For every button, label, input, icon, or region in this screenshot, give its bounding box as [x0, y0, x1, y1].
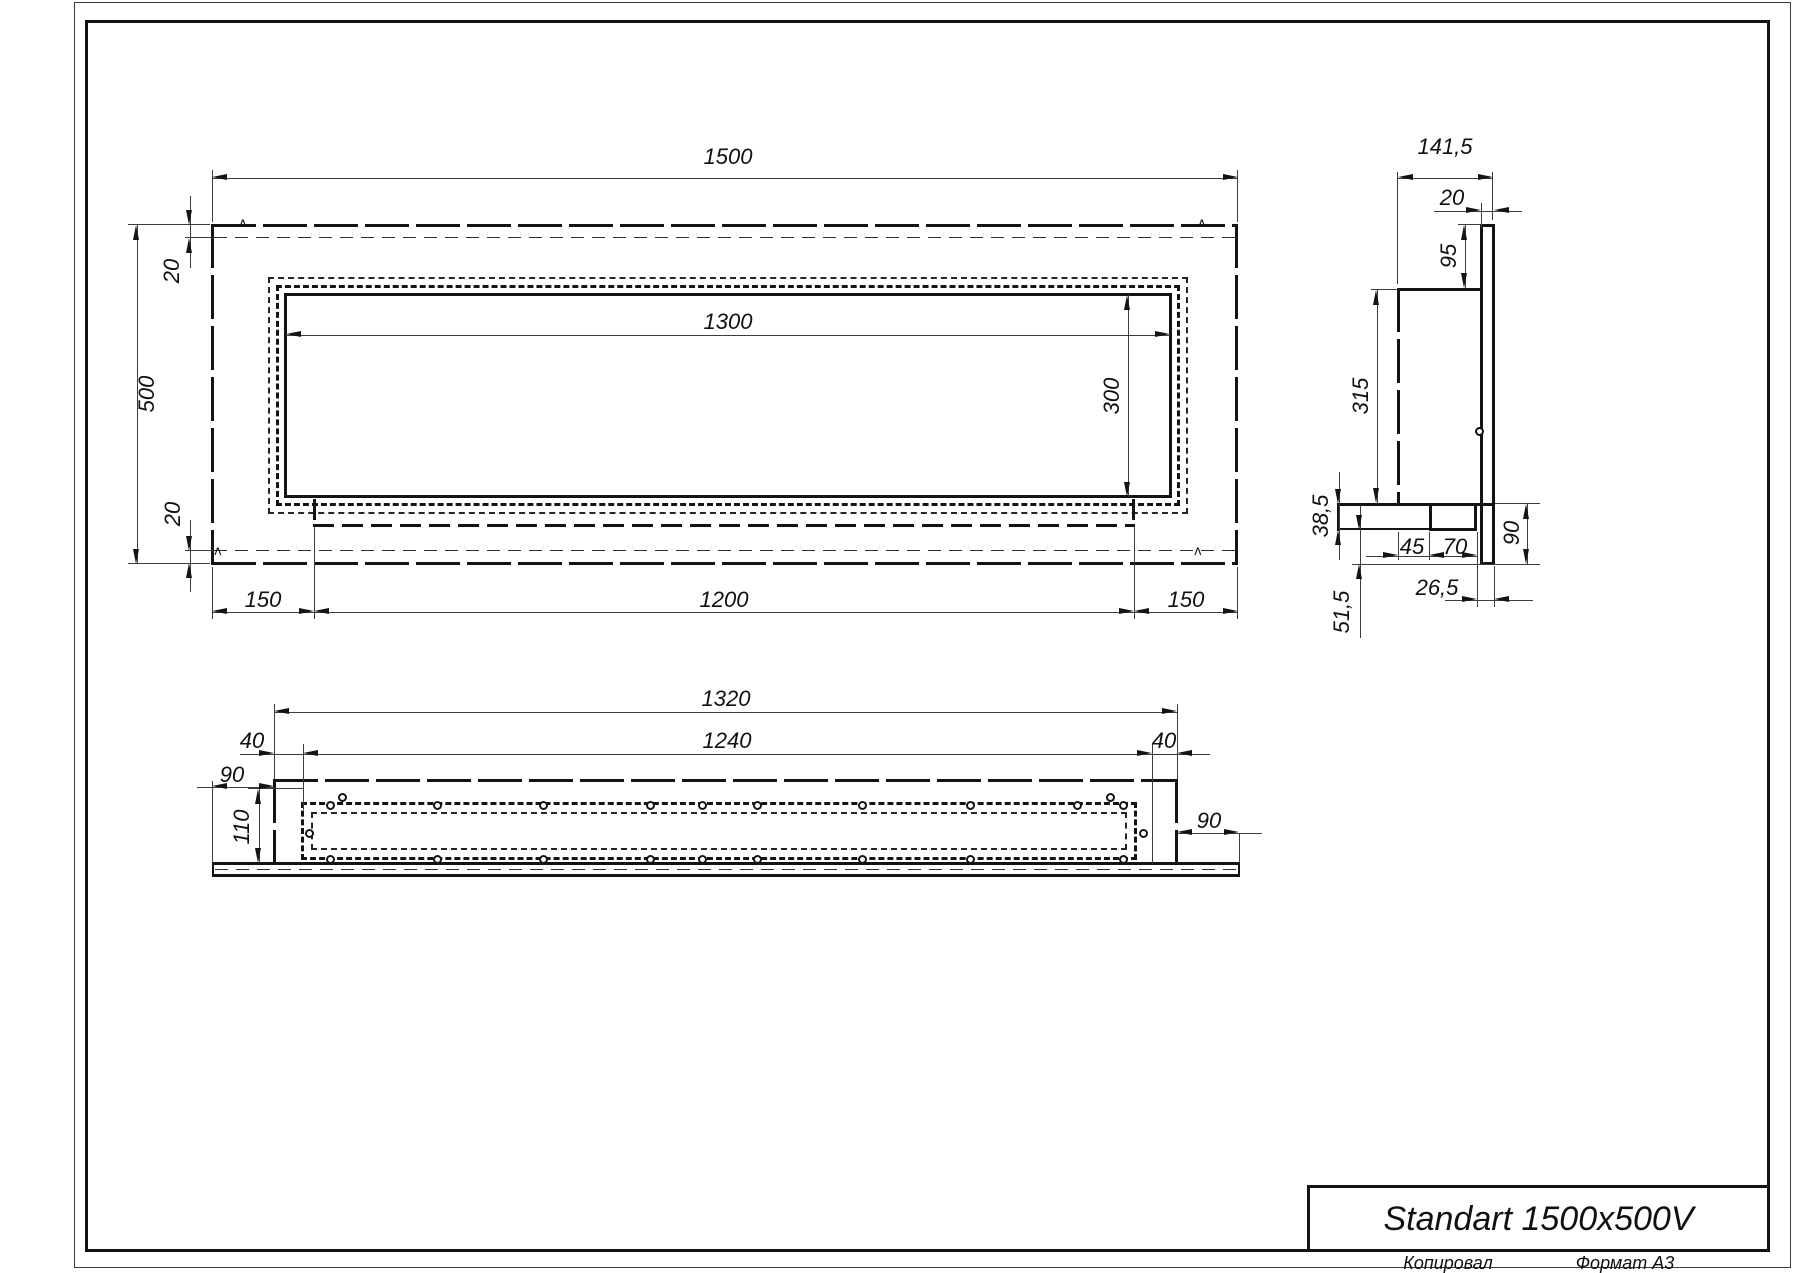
ext-line	[314, 527, 315, 619]
drawing-sheet: ʌ ʌ ʌ ʌ 1500 500 20 20 1300	[0, 0, 1800, 1273]
bottom-body-front	[274, 779, 1177, 782]
dim-line-front-width	[212, 178, 1238, 179]
dim-line-bottom	[212, 612, 1238, 613]
dim-line-top-inset	[190, 196, 191, 268]
arrowhead	[1373, 488, 1379, 503]
rivet-hole	[698, 855, 707, 864]
rivet-hole	[305, 829, 314, 838]
rivet-hole	[433, 855, 442, 864]
rivet-hole	[753, 801, 762, 810]
side-body-top	[1398, 288, 1483, 291]
dim-line-bottom-inner	[240, 754, 1210, 755]
rivet-hole	[326, 801, 335, 810]
dim-line-bottom-inset	[190, 520, 191, 592]
side-body-back	[1397, 288, 1400, 504]
ext-line	[274, 704, 275, 779]
arrowhead	[255, 848, 261, 863]
arrowhead	[1373, 290, 1379, 305]
arrowhead	[274, 708, 289, 714]
front-outline-left	[211, 224, 214, 565]
arrowhead	[1383, 552, 1398, 558]
dim-right-inset-label: 40	[1152, 730, 1176, 752]
rivet-hole	[1106, 793, 1115, 802]
arrowhead	[1124, 295, 1130, 310]
rivet-hole	[646, 801, 655, 810]
ext-line	[128, 224, 210, 225]
dim-overhang-label: 90	[1501, 521, 1523, 545]
rivet-hole	[698, 801, 707, 810]
title-block: Standart 1500x500V	[1307, 1185, 1770, 1252]
arrowhead	[1356, 515, 1362, 530]
dim-line-opening-width	[286, 335, 1170, 336]
arrowhead	[1398, 174, 1413, 180]
bottom-plate-bottom	[212, 874, 1240, 877]
side-mount-hole	[1475, 427, 1484, 436]
weld-mark-bottom-left: ʌ	[214, 545, 222, 558]
rivet-hole	[858, 855, 867, 864]
side-plate-bottom	[1337, 528, 1429, 530]
bottom-body-right	[1175, 779, 1178, 865]
dim-line-bottom-outer	[274, 712, 1178, 713]
arrowhead	[1223, 608, 1238, 614]
format-label: Формат А3	[1576, 1254, 1675, 1272]
ext-line	[212, 781, 213, 863]
copied-by-label: Копировал	[1403, 1254, 1493, 1272]
arrowhead	[1461, 225, 1467, 240]
ext-line	[1352, 564, 1540, 565]
bottom-burner-hidden-inner	[311, 812, 1127, 850]
drawing-frame	[85, 20, 1770, 1252]
dim-side-depth-label: 141,5	[1417, 136, 1472, 158]
arrowhead	[186, 536, 192, 551]
rivet-hole	[966, 801, 975, 810]
arrowhead	[1177, 829, 1192, 835]
bottom-plate-top	[212, 862, 1240, 865]
arrowhead	[299, 608, 314, 614]
bottom-plate-left-cap	[212, 862, 214, 877]
bottom-plate-hidden-line	[215, 869, 1237, 870]
arrowhead	[1523, 549, 1529, 564]
dim-bottom-inset-label: 20	[162, 502, 184, 526]
weld-mark-top-left: ʌ	[239, 217, 247, 230]
dim-top-inset-label: 20	[161, 259, 183, 283]
dim-opening-height-label: 300	[1101, 378, 1123, 415]
rivet-hole	[326, 855, 335, 864]
front-hidden-line-bottom	[214, 550, 1236, 551]
arrowhead	[1162, 708, 1177, 714]
bottom-plate-right-cap	[1238, 862, 1240, 877]
rivet-hole	[1139, 829, 1148, 838]
drawing-title: Standart 1500x500V	[1383, 1202, 1693, 1236]
rivet-hole	[1119, 855, 1128, 864]
arrowhead	[255, 789, 261, 804]
rivet-hole	[433, 801, 442, 810]
front-tray-hidden-bottom	[313, 524, 1135, 527]
arrowhead	[286, 331, 301, 337]
dim-bottom-inner-label: 1240	[703, 730, 752, 752]
dim-shelf-inset-label: 45	[1400, 536, 1424, 558]
dim-front-height-label: 500	[136, 376, 158, 413]
front-outline-top	[212, 224, 1238, 227]
weld-mark-bottom-right: ʌ	[1194, 545, 1202, 558]
arrowhead	[1466, 207, 1481, 213]
dim-left-overhang-label: 90	[220, 764, 244, 786]
dim-bottom-outer-label: 1320	[702, 688, 751, 710]
dim-left-inset-label: 40	[240, 730, 264, 752]
dim-step-height-label: 38,5	[1310, 495, 1332, 538]
ext-line	[1477, 532, 1478, 607]
arrowhead	[212, 174, 227, 180]
front-outline-right	[1235, 224, 1238, 565]
rivet-hole	[539, 801, 548, 810]
arrowhead	[1223, 174, 1238, 180]
arrowhead	[303, 750, 318, 756]
dim-line-opening-height	[1128, 295, 1129, 497]
arrowhead	[1523, 504, 1529, 519]
arrowhead	[133, 225, 139, 240]
front-outline-bottom	[212, 562, 1238, 565]
dim-body-height-label: 315	[1350, 378, 1372, 415]
side-flange	[1480, 224, 1495, 565]
arrowhead	[1177, 750, 1192, 756]
arrowhead	[212, 608, 227, 614]
ext-line	[1152, 744, 1153, 864]
arrowhead	[186, 210, 192, 225]
arrowhead	[1119, 608, 1134, 614]
arrowhead	[186, 563, 192, 578]
dim-flange-label: 20	[1440, 187, 1464, 209]
arrowhead	[1356, 564, 1362, 579]
arrowhead	[1494, 207, 1509, 213]
arrowhead	[1155, 331, 1170, 337]
front-tray-hidden-left	[313, 499, 316, 526]
arrowhead	[1335, 530, 1341, 545]
front-tray-hidden-right	[1132, 499, 1135, 526]
arrowhead	[259, 783, 274, 789]
arrowhead	[1429, 552, 1444, 558]
arrowhead	[1494, 596, 1509, 602]
dim-burner-width-label: 1200	[700, 589, 749, 611]
arrowhead	[314, 608, 329, 614]
dim-line-step-height	[1339, 472, 1340, 560]
dim-right-overhang-label: 90	[1197, 810, 1221, 832]
arrowhead	[1461, 273, 1467, 288]
rivet-hole	[539, 855, 548, 864]
rivet-hole	[1119, 801, 1128, 810]
weld-mark-top-right: ʌ	[1198, 217, 1206, 230]
ext-line	[1397, 172, 1398, 284]
dim-opening-width-label: 1300	[704, 311, 753, 333]
arrowhead	[186, 238, 192, 253]
dim-left-offset-label: 150	[245, 589, 282, 611]
ext-line	[1239, 833, 1240, 863]
ext-line	[1495, 503, 1540, 504]
rivet-hole	[338, 793, 347, 802]
rivet-hole	[858, 801, 867, 810]
dim-tray-width-label: 70	[1443, 536, 1467, 558]
dim-line-front-offset	[1445, 600, 1533, 601]
ext-line	[1177, 704, 1178, 779]
arrowhead	[1462, 596, 1477, 602]
dim-right-offset-label: 150	[1168, 589, 1205, 611]
dim-lower-height-label: 51,5	[1331, 591, 1353, 634]
ext-line	[1134, 527, 1135, 619]
bottom-body-left	[273, 779, 276, 865]
ext-line	[128, 563, 210, 564]
front-hidden-line-top	[214, 237, 1236, 238]
dim-line-body-height	[1377, 290, 1378, 503]
dim-depth110-label: 110	[231, 809, 253, 844]
rivet-hole	[753, 855, 762, 864]
arrowhead	[1137, 750, 1152, 756]
dim-top-offset-label: 95	[1438, 244, 1460, 268]
arrowhead	[1478, 174, 1493, 180]
arrowhead	[1134, 608, 1149, 614]
arrowhead	[1335, 489, 1341, 504]
arrowhead	[133, 549, 139, 564]
rivet-hole	[1073, 801, 1082, 810]
side-tray-section	[1429, 503, 1477, 531]
dim-front-width-label: 1500	[704, 146, 753, 168]
arrowhead	[1224, 829, 1239, 835]
dim-front-offset-label: 26,5	[1416, 577, 1459, 599]
rivet-hole	[966, 855, 975, 864]
rivet-hole	[646, 855, 655, 864]
arrowhead	[1124, 482, 1130, 497]
